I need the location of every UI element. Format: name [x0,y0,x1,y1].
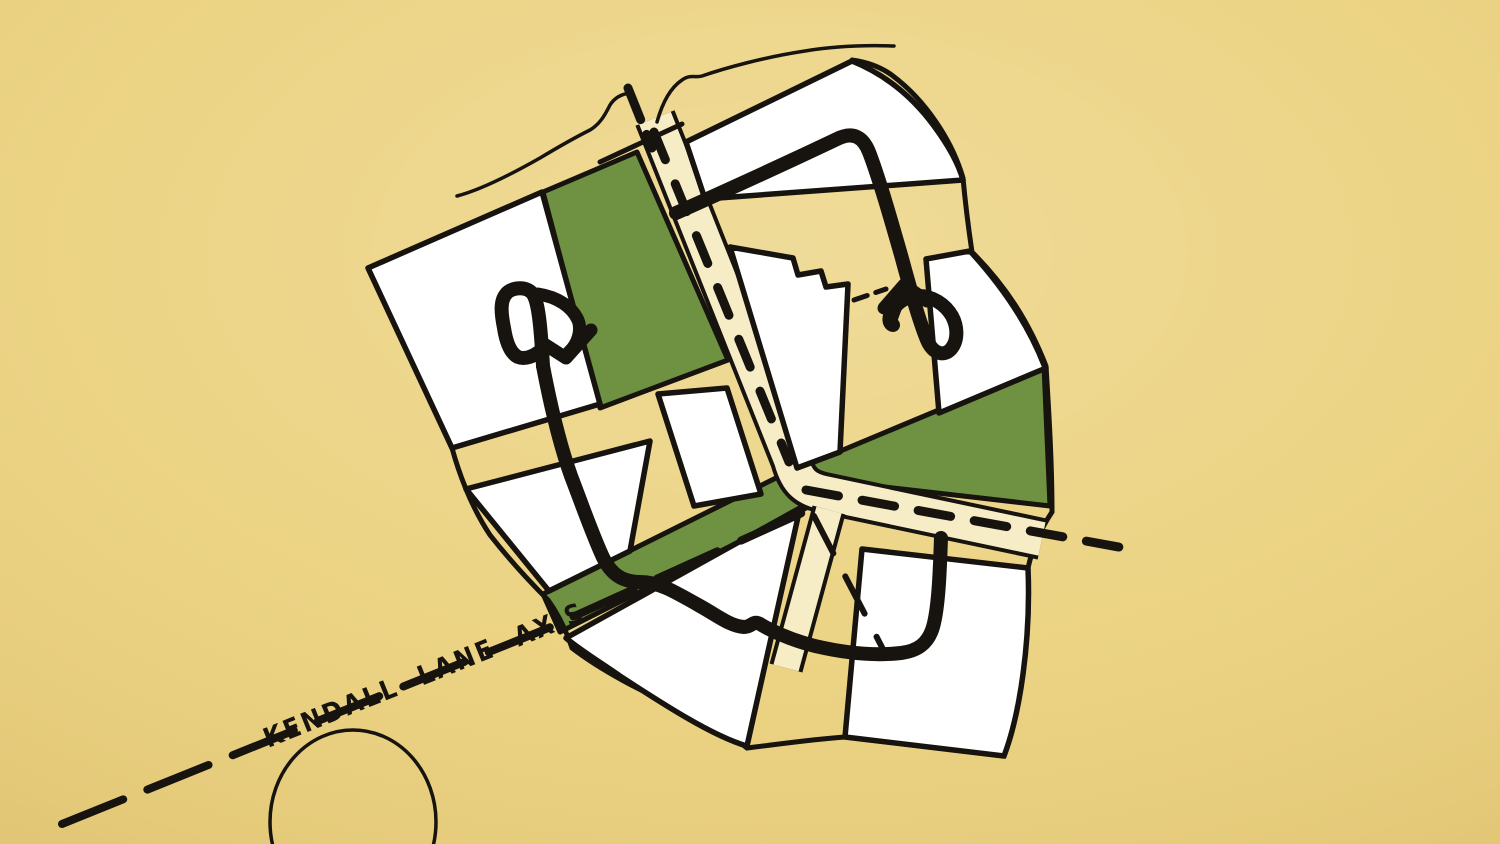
site-plan-sketch: KENDALL LANE AXIS [0,0,1500,844]
sketch-canvas: KENDALL LANE AXIS [0,0,1500,844]
